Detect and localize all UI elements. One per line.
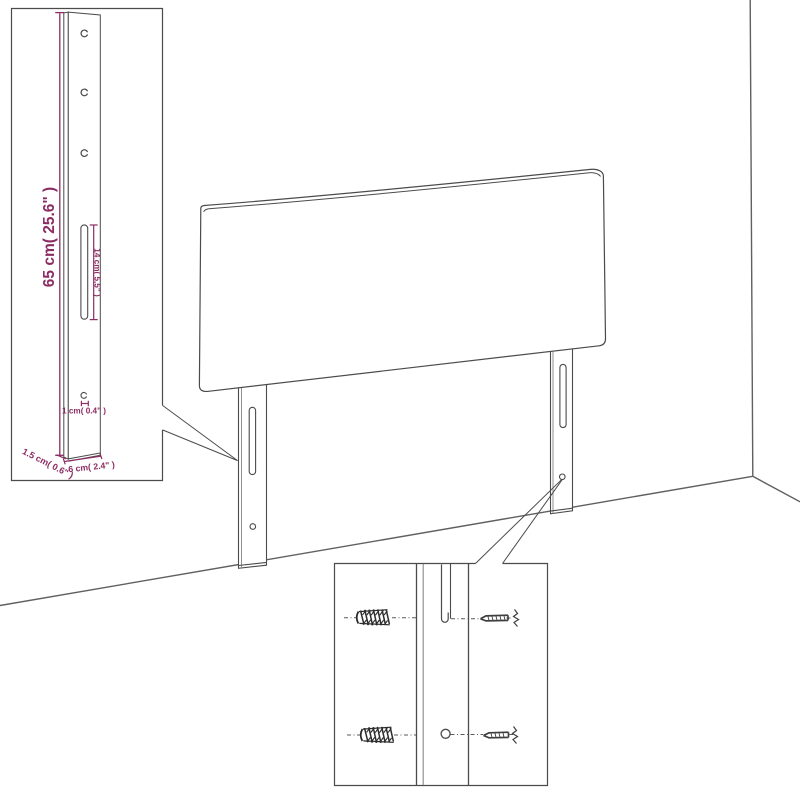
svg-text:14 cm( 5.5" ): 14 cm( 5.5" ) (93, 248, 102, 297)
svg-text:1 cm( 0.4" ): 1 cm( 0.4" ) (62, 407, 106, 416)
svg-text:65 cm( 25.6" ): 65 cm( 25.6" ) (41, 187, 58, 287)
